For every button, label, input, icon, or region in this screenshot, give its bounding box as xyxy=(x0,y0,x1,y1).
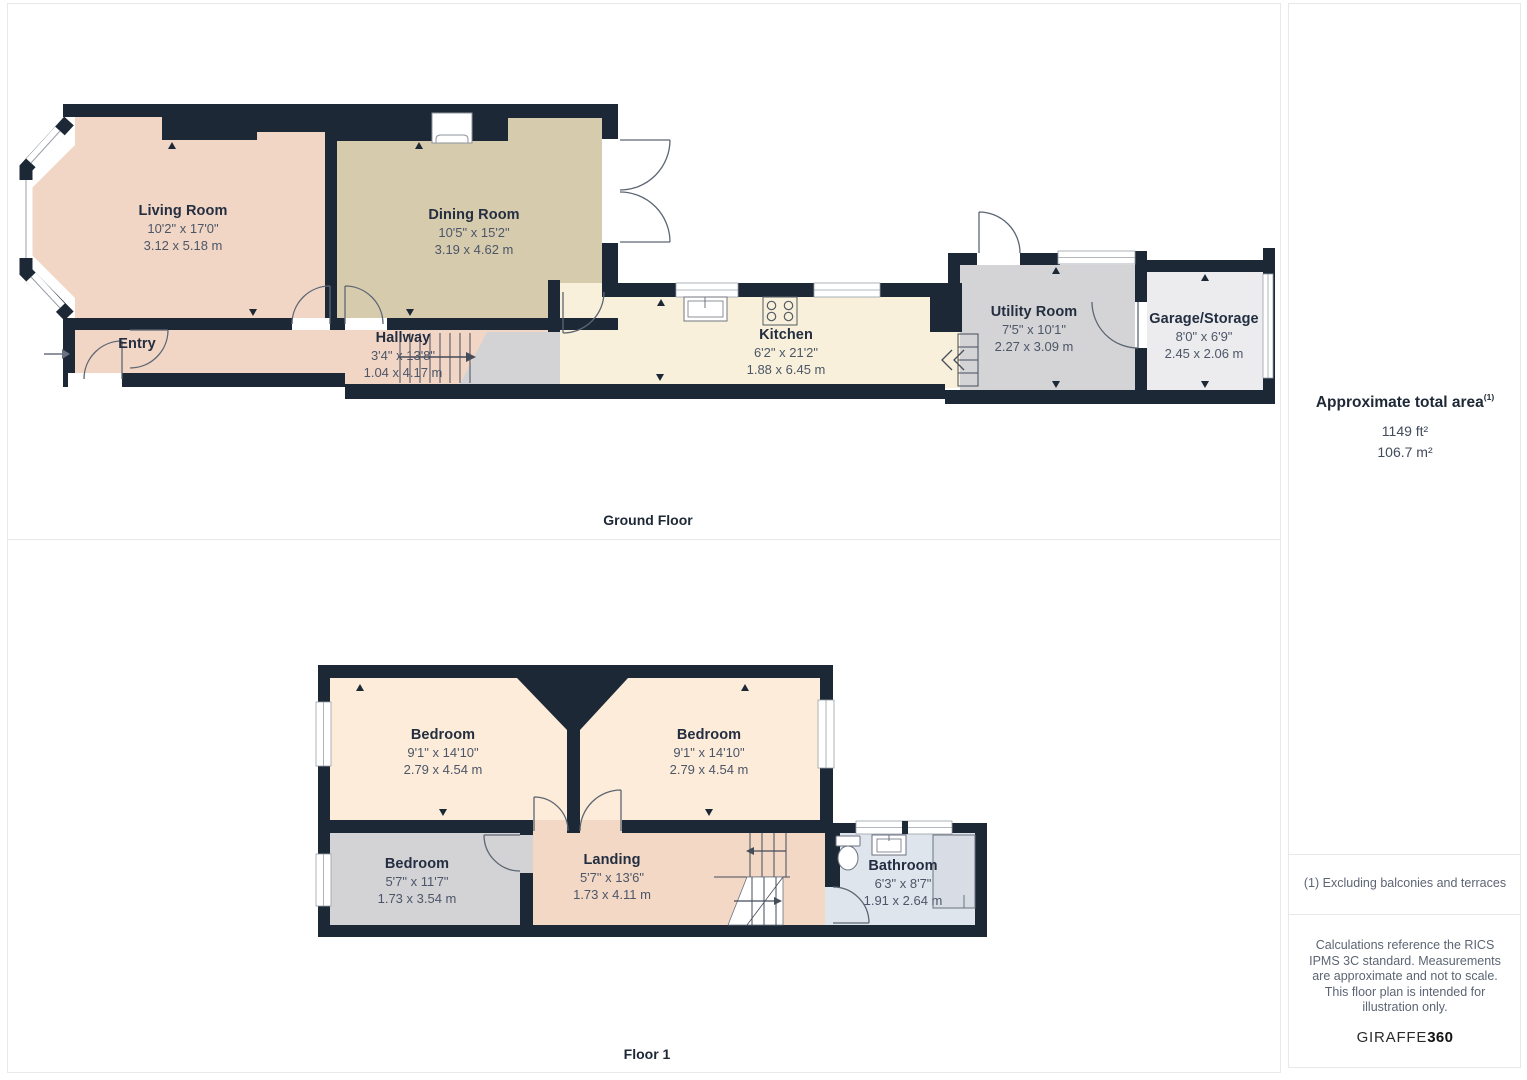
kitchen-passage-floor xyxy=(930,332,962,388)
sidebar-disclaimer-block: Calculations reference the RICS IPMS 3C … xyxy=(1289,938,1521,1046)
floor-label-ground: Ground Floor xyxy=(603,512,692,528)
room-label-landing: Landing 5'7" x 13'6" 1.73 x 4.11 m xyxy=(573,851,651,903)
total-area-m: 106.7 m² xyxy=(1289,442,1521,463)
total-area-title: Approximate total area(1) xyxy=(1289,388,1521,413)
room-label-hallway: Hallway 3'4" x 13'8" 1.04 x 4.17 m xyxy=(364,329,443,381)
floor-label-1: Floor 1 xyxy=(624,1046,671,1062)
toilet-icon xyxy=(836,836,860,870)
floorplan-drawing xyxy=(0,0,1527,1080)
total-area-ft: 1149 ft² xyxy=(1289,421,1521,442)
fireplace-icon xyxy=(432,113,472,143)
total-area-block: Approximate total area(1) 1149 ft² 106.7… xyxy=(1289,388,1521,463)
disclaimer-text: Calculations reference the RICS IPMS 3C … xyxy=(1306,938,1504,1016)
room-label-dining-room: Dining Room 10'5" x 15'2" 3.19 x 4.62 m xyxy=(428,206,519,258)
washbasin-icon xyxy=(872,835,906,855)
kitchen-floor xyxy=(560,283,930,387)
room-label-kitchen: Kitchen 6'2" x 21'2" 1.88 x 6.45 m xyxy=(747,326,826,378)
room-label-living-room: Living Room 10'2" x 17'0" 3.12 x 5.18 m xyxy=(139,202,228,254)
floorplan-page: Living Room 10'2" x 17'0" 3.12 x 5.18 m … xyxy=(0,0,1527,1080)
room-label-garage-storage: Garage/Storage 8'0" x 6'9" 2.45 x 2.06 m xyxy=(1149,310,1258,362)
room-label-bedroom-3: Bedroom 5'7" x 11'7" 1.73 x 3.54 m xyxy=(378,855,457,907)
room-label-bedroom-2: Bedroom 9'1" x 14'10" 2.79 x 4.54 m xyxy=(670,726,749,778)
sink-icon xyxy=(684,297,727,321)
room-label-bedroom-1: Bedroom 9'1" x 14'10" 2.79 x 4.54 m xyxy=(404,726,483,778)
footnote-marker: (1) xyxy=(1484,392,1494,402)
sidebar-footnote: (1) Excluding balconies and terraces xyxy=(1289,876,1521,890)
room-label-bathroom: Bathroom 6'3" x 8'7" 1.91 x 2.64 m xyxy=(864,857,943,909)
room-label-entry: Entry xyxy=(118,335,156,354)
room-label-utility-room: Utility Room 7'5" x 10'1" 2.27 x 3.09 m xyxy=(991,303,1078,355)
giraffe360-logo: GIRAFFE360 xyxy=(1289,1029,1521,1046)
ground-floor-plan xyxy=(26,104,1275,404)
